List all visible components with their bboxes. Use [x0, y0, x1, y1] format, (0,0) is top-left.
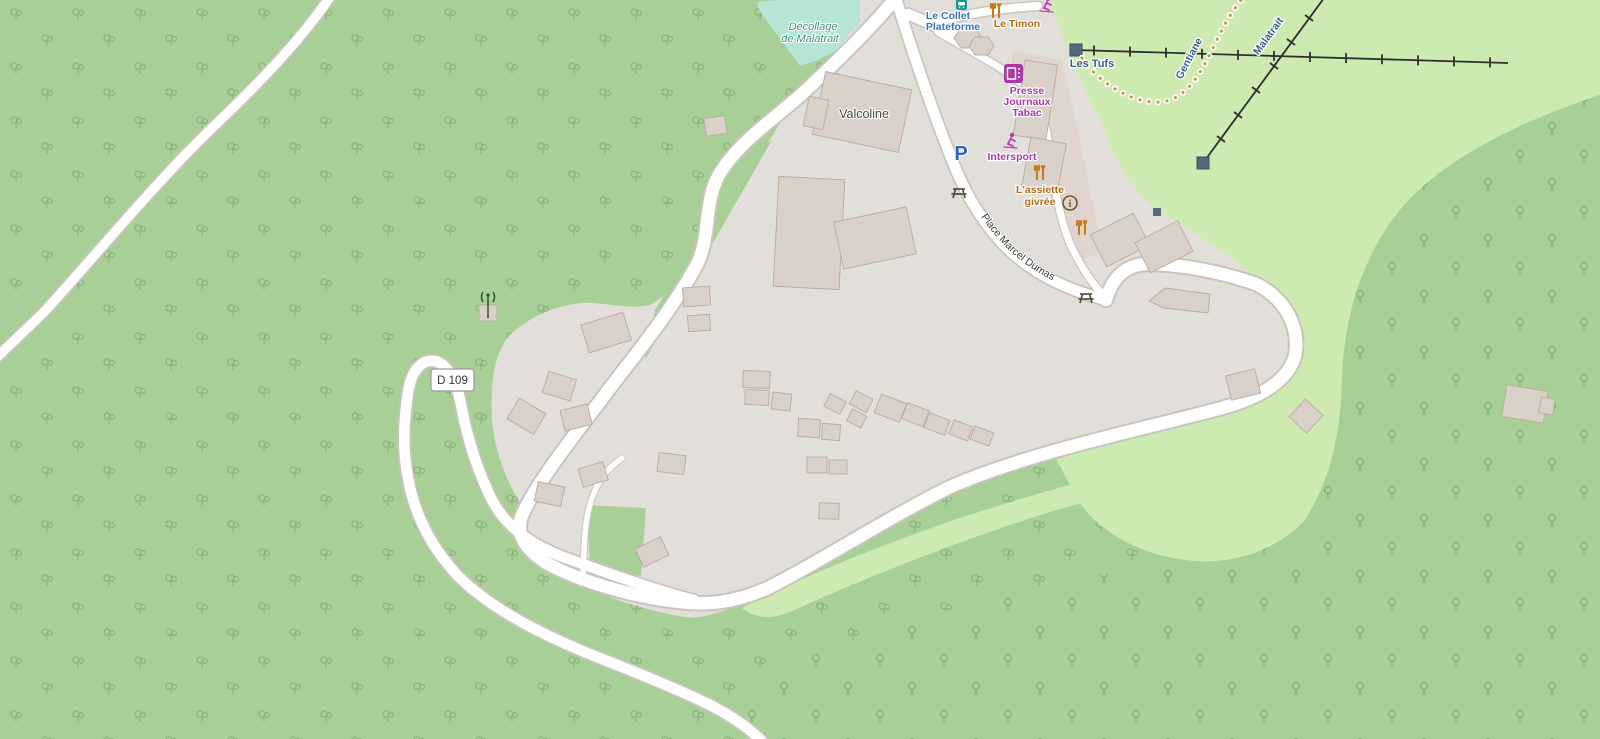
building	[829, 460, 847, 474]
bus-stop-icon[interactable]	[956, 0, 967, 10]
road-shield-d109: D 109	[431, 369, 474, 391]
newsagent-icon[interactable]	[1004, 64, 1023, 83]
svg-text:i: i	[1069, 199, 1072, 210]
building	[1539, 397, 1555, 415]
map-canvas[interactable]: P i D 109 Le Collet Plateforme Le Timon …	[0, 0, 1600, 739]
label-takeoff-line1: Décollage	[789, 21, 838, 33]
building	[682, 286, 710, 307]
label-bus-stop-line2[interactable]: Plateforme	[926, 21, 980, 33]
station-marker[interactable]	[1197, 157, 1209, 169]
label-assiette-line2[interactable]: givrée	[1025, 196, 1056, 208]
svg-text:D 109: D 109	[437, 375, 468, 387]
label-valcoline[interactable]: Valcoline	[839, 107, 889, 121]
station-marker[interactable]	[1070, 44, 1082, 56]
building	[797, 418, 820, 437]
building-hexagon	[969, 37, 994, 55]
building-complex	[773, 176, 845, 289]
building	[819, 503, 840, 520]
building	[771, 392, 792, 411]
building	[821, 423, 840, 440]
building	[657, 452, 686, 474]
building	[743, 371, 771, 389]
building	[745, 390, 770, 406]
label-takeoff-line2: de Malatrait	[781, 33, 839, 45]
label-assiette-line1[interactable]: L'assiette	[1016, 184, 1064, 196]
building	[807, 457, 827, 473]
station-marker-small	[1153, 208, 1161, 216]
label-presse-line3[interactable]: Tabac	[1012, 107, 1042, 119]
building	[687, 314, 710, 331]
label-intersport[interactable]: Intersport	[987, 151, 1037, 163]
label-les-tufs[interactable]: Les Tufs	[1070, 58, 1114, 70]
label-le-timon[interactable]: Le Timon	[994, 18, 1040, 30]
building	[704, 116, 727, 137]
parking-icon[interactable]: P	[954, 143, 967, 165]
